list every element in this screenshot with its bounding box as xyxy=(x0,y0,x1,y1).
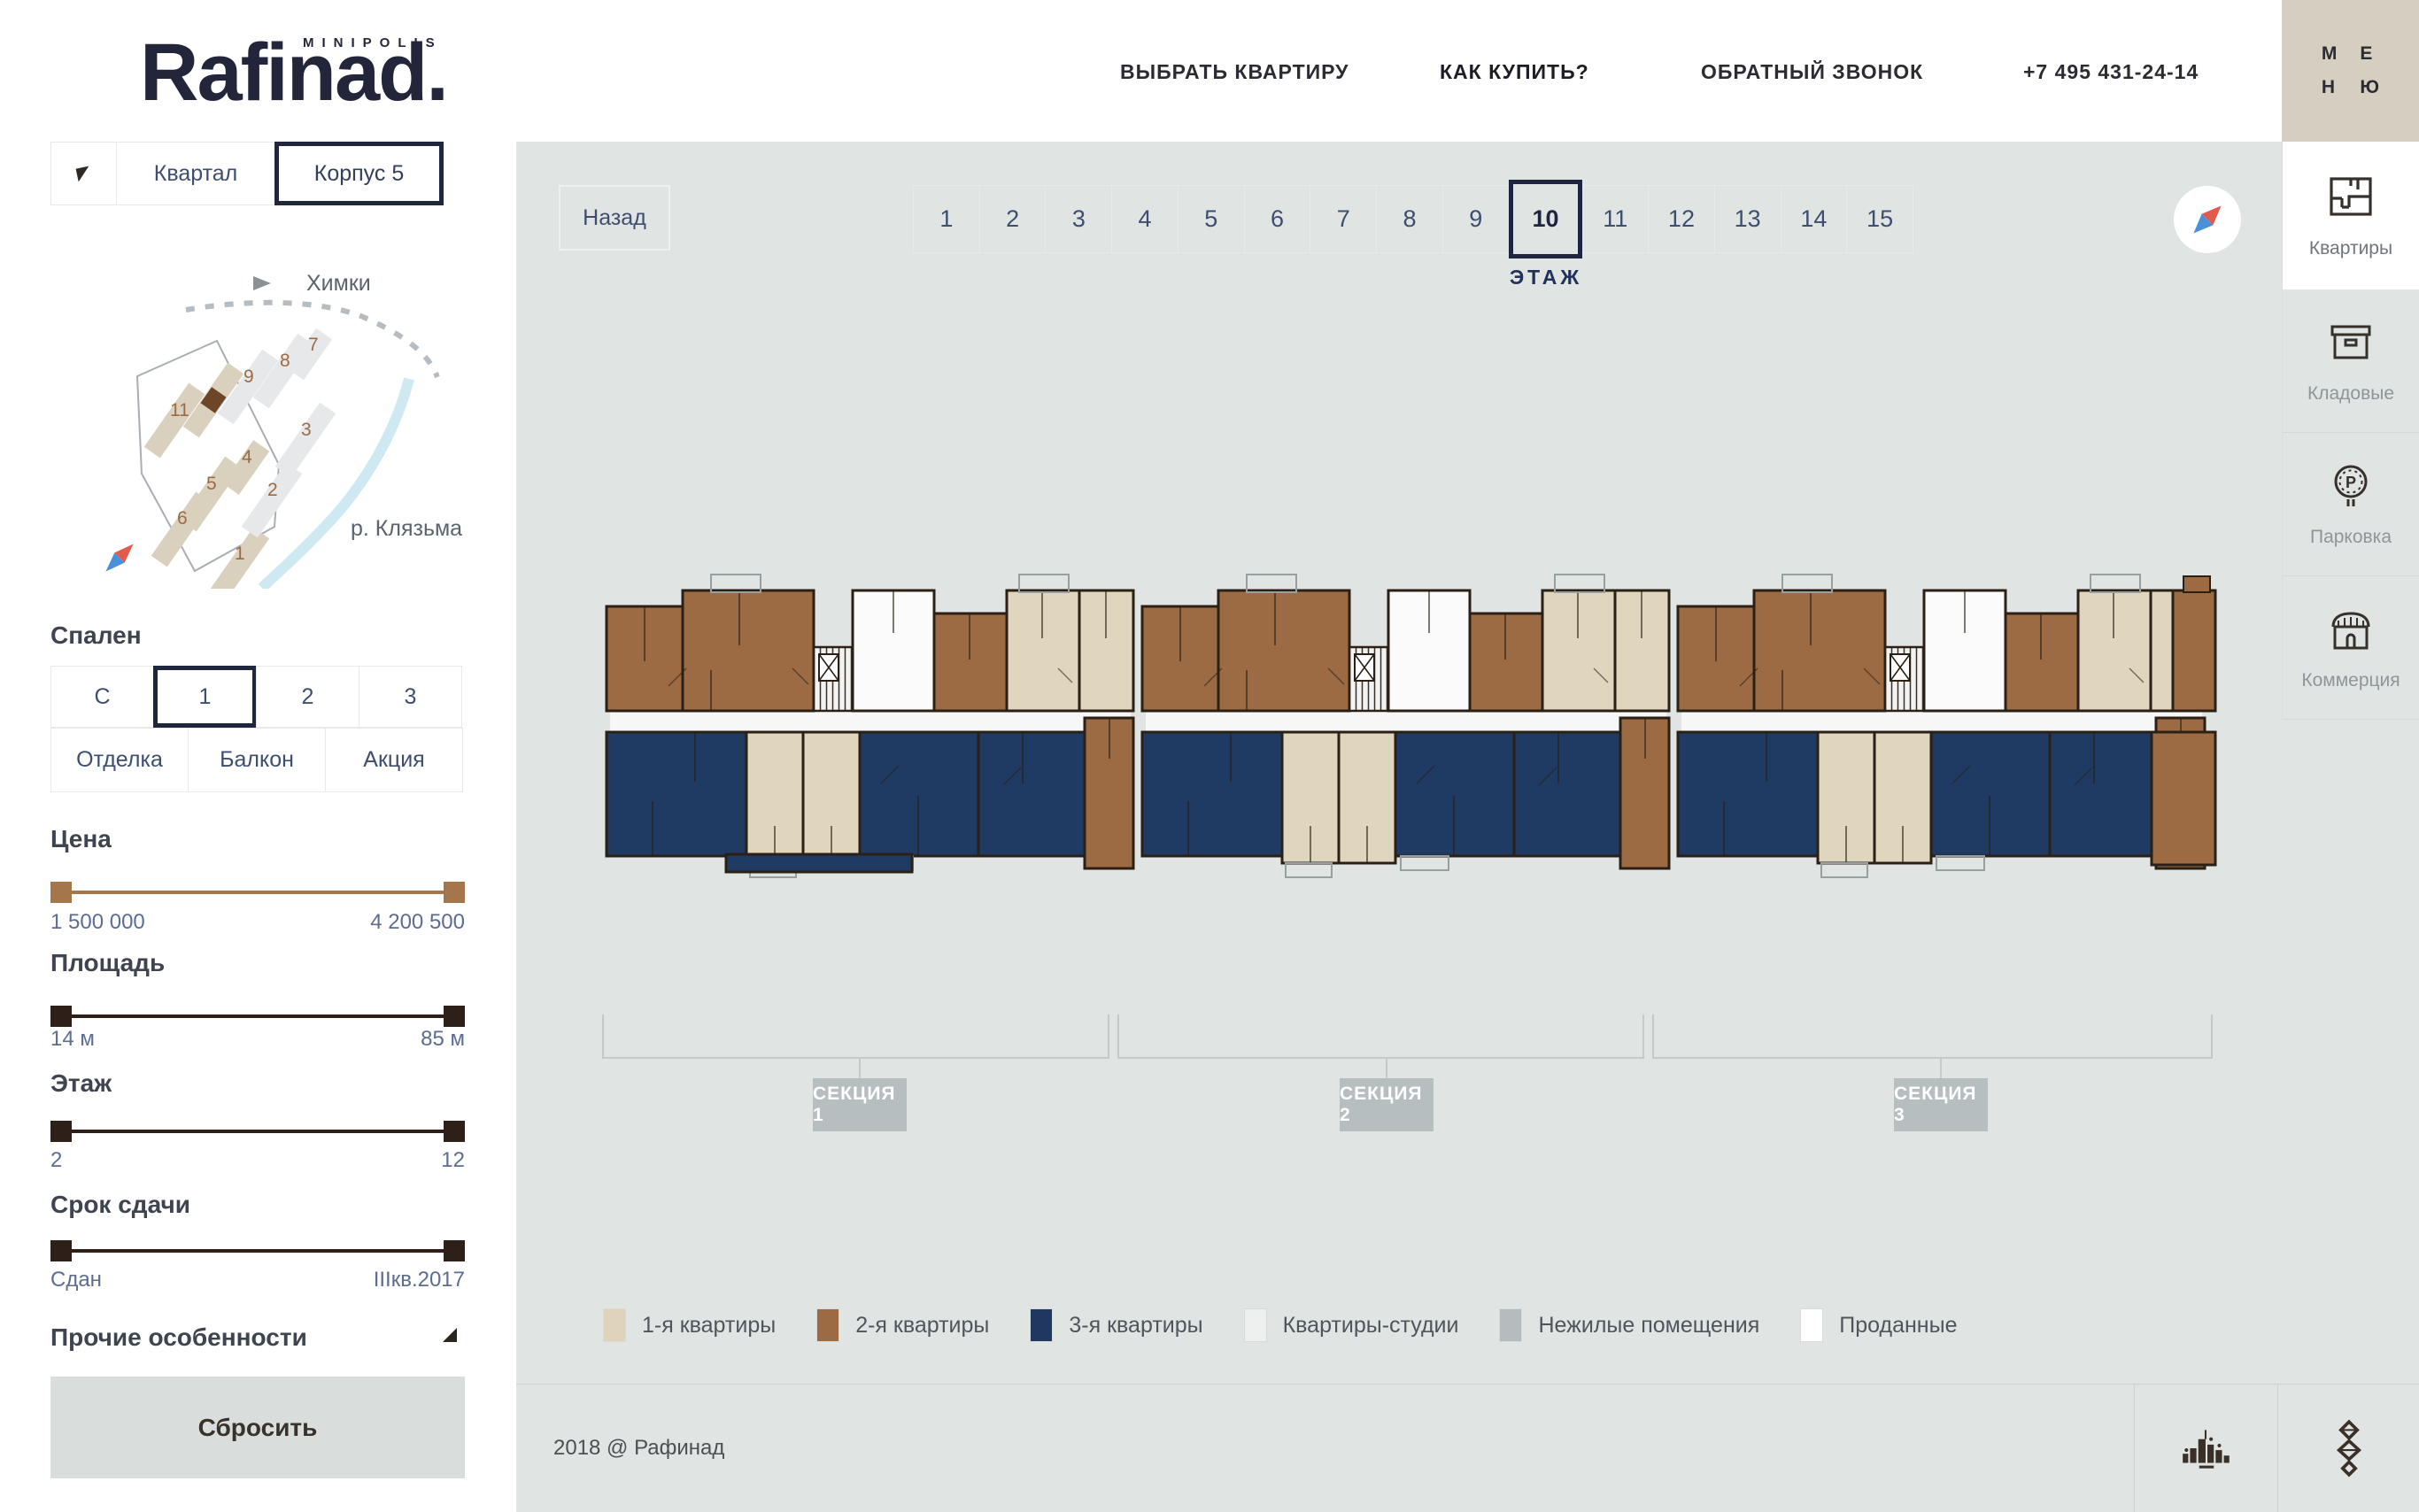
floor-button-15[interactable]: 15 xyxy=(1846,185,1913,253)
legend-label: Квартиры-студии xyxy=(1283,1313,1459,1338)
nav-how-to-buy[interactable]: КАК КУПИТЬ? xyxy=(1440,60,1589,84)
logo[interactable]: Rafinad. xyxy=(140,27,447,120)
map-number-7: 7 xyxy=(308,335,319,355)
floorplan-icon xyxy=(2326,172,2376,226)
map-number-5: 5 xyxy=(206,474,217,494)
rail-item-parking[interactable]: P Парковка xyxy=(2283,433,2419,576)
area-max-value: 85 м xyxy=(421,1027,465,1052)
section-2-stem xyxy=(1386,1059,1387,1078)
main-area: Назад 1 2 3 4 5 6 7 8 9 10 11 12 13 14 1… xyxy=(516,142,2419,1512)
completion-slider-handle-min[interactable] xyxy=(50,1240,72,1261)
menu-button[interactable]: М Е Н Ю xyxy=(2282,0,2419,142)
legend-swatch-sold xyxy=(1800,1308,1823,1342)
floor-slider-track[interactable] xyxy=(59,1130,456,1133)
bedrooms-studio-button[interactable]: С xyxy=(50,666,154,728)
section-1-badge: СЕКЦИЯ 1 xyxy=(813,1078,907,1131)
compass-icon xyxy=(2174,186,2241,253)
completion-slider[interactable] xyxy=(50,1239,465,1262)
right-rail: М Е Н Ю Квартиры Кладовые xyxy=(2282,0,2419,720)
rail-label-commerce: Коммерция xyxy=(2301,670,2400,691)
reset-button[interactable]: Сбросить xyxy=(50,1377,465,1478)
parking-sign-icon: P xyxy=(2326,460,2376,514)
bedrooms-3-button[interactable]: 3 xyxy=(359,666,462,728)
bedrooms-1-button-selected[interactable]: 1 xyxy=(153,666,257,728)
legend-swatch-studio xyxy=(1244,1308,1267,1342)
price-slider-handle-min[interactable] xyxy=(50,882,72,903)
legend-label: Нежилые помещения xyxy=(1538,1313,1759,1338)
tab-kvartal[interactable]: Квартал xyxy=(116,142,275,205)
area-slider-handle-max[interactable] xyxy=(444,1006,465,1027)
view-tabs: Квартал Корпус 5 xyxy=(50,142,444,205)
rail-item-apartments[interactable]: Квартиры xyxy=(2283,142,2419,289)
floorplan-left-cap xyxy=(726,854,912,872)
bedrooms-row: С 1 2 3 xyxy=(50,666,462,728)
floor-max-value: 12 xyxy=(441,1148,465,1173)
floor-title: Этаж xyxy=(50,1069,112,1098)
legend-label: 3-я квартиры xyxy=(1069,1313,1202,1338)
price-max-value: 4 200 500 xyxy=(370,910,465,935)
legend-item-2br: 2-я квартиры xyxy=(816,1308,989,1342)
copyright: 2018 @ Рафинад xyxy=(553,1436,724,1461)
floorplan-section-3[interactable] xyxy=(1678,575,2205,877)
floor-slider-handle-min[interactable] xyxy=(50,1121,72,1142)
floor-button-13[interactable]: 13 xyxy=(1714,185,1781,253)
area-values: 14 м 85 м xyxy=(50,1027,465,1052)
section-1-stem xyxy=(859,1059,861,1078)
balcony-filter-button[interactable]: Балкон xyxy=(188,728,326,792)
area-title: Площадь xyxy=(50,949,165,977)
nav-choose-apartment[interactable]: ВЫБРАТЬ КВАРТИРУ xyxy=(1120,60,1349,84)
floor-button-14[interactable]: 14 xyxy=(1781,185,1848,253)
floor-button-9[interactable]: 9 xyxy=(1442,185,1510,253)
legend: 1-я квартиры 2-я квартиры 3-я квартиры К… xyxy=(603,1308,1957,1342)
menu-letter: М xyxy=(2322,43,2338,65)
floor-caption: ЭТАЖ xyxy=(1493,266,1599,289)
floor-button-11[interactable]: 11 xyxy=(1581,185,1649,253)
promo-filter-button[interactable]: Акция xyxy=(325,728,463,792)
menu-letter: Н xyxy=(2322,77,2338,98)
section-3-stem xyxy=(1940,1059,1942,1078)
floor-button-10-selected[interactable]: 10 xyxy=(1509,180,1583,258)
area-min-value: 14 м xyxy=(50,1027,95,1052)
legend-item-3br: 3-я квартиры xyxy=(1030,1308,1202,1342)
back-button[interactable]: Назад xyxy=(559,185,670,251)
completion-values: Сдан IIIкв.2017 xyxy=(50,1268,465,1292)
floor-button-5[interactable]: 5 xyxy=(1178,185,1245,253)
floorplan-section-1[interactable] xyxy=(607,575,1133,877)
legend-label: 1-я квартиры xyxy=(642,1313,776,1338)
menu-letter: Ю xyxy=(2360,77,2379,98)
nav-callback[interactable]: ОБРАТНЫЙ ЗВОНОК xyxy=(1701,60,1923,84)
area-slider[interactable] xyxy=(50,1005,465,1028)
completion-slider-handle-max[interactable] xyxy=(444,1240,465,1261)
rail-label-storage: Кладовые xyxy=(2307,383,2394,405)
header: MINIPOLIS Rafinad. ВЫБРАТЬ КВАРТИРУ КАК … xyxy=(0,0,2419,142)
completion-max-value: IIIкв.2017 xyxy=(374,1268,465,1292)
floor-values: 2 12 xyxy=(50,1148,465,1173)
floor-button-2[interactable]: 2 xyxy=(979,185,1047,253)
price-min-value: 1 500 000 xyxy=(50,910,145,935)
map-number-4: 4 xyxy=(242,447,252,467)
legend-swatch-3br xyxy=(1030,1308,1053,1342)
legend-swatch-nonresidential xyxy=(1499,1308,1522,1342)
legend-swatch-2br xyxy=(816,1308,839,1342)
section-2-badge: СЕКЦИЯ 2 xyxy=(1340,1078,1434,1131)
map-building-6[interactable] xyxy=(151,492,212,567)
floor-button-4[interactable]: 4 xyxy=(1111,185,1179,253)
price-slider[interactable] xyxy=(50,881,465,904)
floor-slider[interactable] xyxy=(50,1120,465,1143)
floor-min-value: 2 xyxy=(50,1148,62,1173)
legend-label: Проданные xyxy=(1839,1313,1957,1338)
floor-button-6[interactable]: 6 xyxy=(1244,185,1311,253)
floor-button-7[interactable]: 7 xyxy=(1310,185,1377,253)
floor-selector: 1 2 3 4 5 6 7 8 9 10 11 12 13 14 15 xyxy=(913,185,1913,253)
ornament-logo-icon[interactable] xyxy=(2277,1384,2419,1512)
tab-korpus-5[interactable]: Корпус 5 xyxy=(274,142,444,205)
section-3-bracket xyxy=(1652,1014,2213,1059)
map-compass-icon xyxy=(101,539,138,576)
finish-filter-button[interactable]: Отделка xyxy=(50,728,189,792)
city-logo-icon[interactable] xyxy=(2134,1384,2277,1512)
section-1-bracket xyxy=(602,1014,1109,1059)
storage-box-icon xyxy=(2326,317,2376,371)
rail-item-storage[interactable]: Кладовые xyxy=(2283,289,2419,433)
floor-slider-handle-max[interactable] xyxy=(444,1121,465,1142)
rail-label-apartments: Квартиры xyxy=(2309,238,2392,259)
more-options-expander[interactable]: Прочие особенности xyxy=(50,1323,307,1352)
price-title: Цена xyxy=(50,825,112,853)
map-number-11: 11 xyxy=(170,400,189,420)
floor-button-3[interactable]: 3 xyxy=(1045,185,1112,253)
map-number-6: 6 xyxy=(177,508,188,528)
features-row: Отделка Балкон Акция xyxy=(50,728,463,792)
phone-number[interactable]: +7 495 431-24-14 xyxy=(2023,60,2199,84)
price-slider-handle-max[interactable] xyxy=(444,882,465,903)
legend-item-nonresidential: Нежилые помещения xyxy=(1499,1308,1759,1342)
shop-icon xyxy=(2326,604,2376,658)
map-number-1: 1 xyxy=(235,544,245,564)
map-number-3: 3 xyxy=(301,420,312,440)
minimap[interactable]: Химки 11 9 8 xyxy=(97,266,469,589)
floor-button-12[interactable]: 12 xyxy=(1648,185,1715,253)
legend-swatch-1br xyxy=(603,1308,626,1342)
map-river-label: р. Клязьма xyxy=(351,516,462,541)
price-slider-track[interactable] xyxy=(59,891,456,894)
area-slider-handle-min[interactable] xyxy=(50,1006,72,1027)
completion-min-value: Сдан xyxy=(50,1268,102,1292)
completion-title: Срок сдачи xyxy=(50,1191,190,1219)
section-3-badge: СЕКЦИЯ 3 xyxy=(1894,1078,1988,1131)
expander-triangle-icon[interactable] xyxy=(443,1328,457,1342)
map-city-label: Химки xyxy=(306,271,371,296)
floor-button-8[interactable]: 8 xyxy=(1376,185,1443,253)
filter-sidebar: Квартал Корпус 5 Химки xyxy=(0,0,516,1512)
legend-item-sold: Проданные xyxy=(1800,1308,1957,1342)
flag-icon[interactable] xyxy=(50,142,117,205)
bedrooms-2-button[interactable]: 2 xyxy=(256,666,359,728)
legend-item-studio: Квартиры-студии xyxy=(1244,1308,1459,1342)
completion-slider-track[interactable] xyxy=(59,1249,456,1253)
legend-label: 2-я квартиры xyxy=(855,1313,989,1338)
floor-button-1[interactable]: 1 xyxy=(913,185,980,253)
map-number-2: 2 xyxy=(267,480,278,500)
rail-label-parking: Парковка xyxy=(2310,527,2392,548)
map-city-arrow-icon xyxy=(253,276,271,290)
price-values: 1 500 000 4 200 500 xyxy=(50,910,465,935)
bedrooms-title: Спален xyxy=(50,621,142,650)
area-slider-track[interactable] xyxy=(59,1014,456,1018)
map-number-8: 8 xyxy=(280,351,290,371)
section-2-bracket xyxy=(1117,1014,1644,1059)
map-number-9: 9 xyxy=(243,366,254,387)
floorplan[interactable] xyxy=(593,562,2222,881)
menu-letter: Е xyxy=(2360,43,2379,65)
svg-text:P: P xyxy=(2346,474,2356,491)
legend-item-1br: 1-я квартиры xyxy=(603,1308,776,1342)
floorplan-section-2[interactable] xyxy=(1142,575,1669,877)
rail-item-commerce[interactable]: Коммерция xyxy=(2283,576,2419,720)
